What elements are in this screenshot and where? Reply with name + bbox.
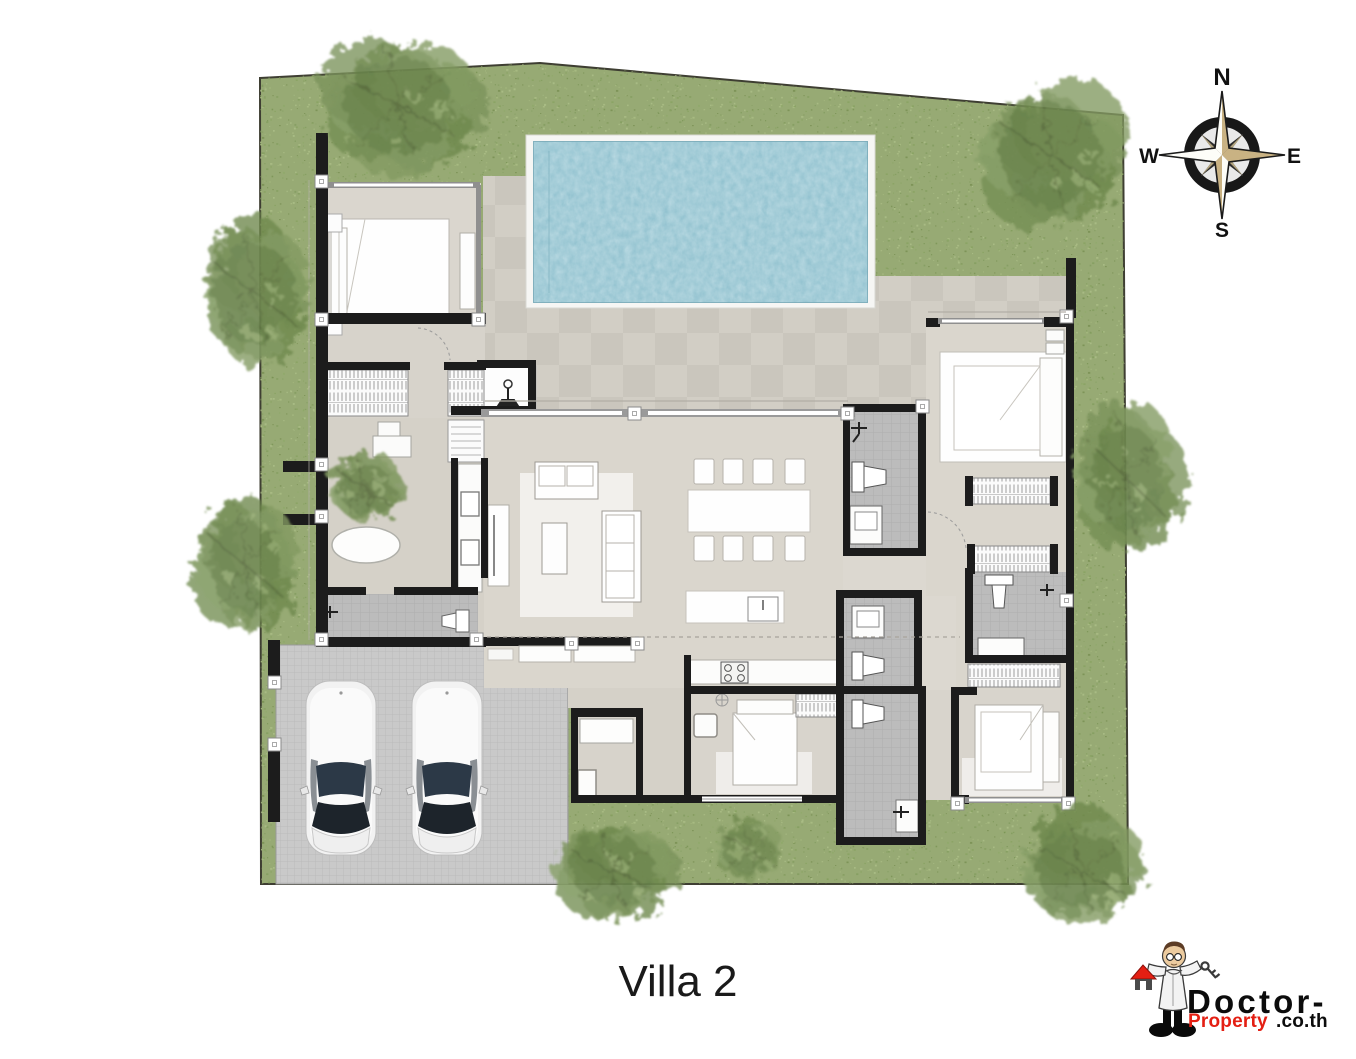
svg-text:E: E [1287,145,1301,168]
svg-text:W: W [1139,145,1159,168]
svg-text:.co.th: .co.th [1276,1011,1328,1032]
svg-text:S: S [1215,219,1229,242]
svg-text:N: N [1213,64,1230,91]
svg-text:Villa 2: Villa 2 [618,957,737,1006]
svg-text:Property: Property [1188,1011,1268,1032]
